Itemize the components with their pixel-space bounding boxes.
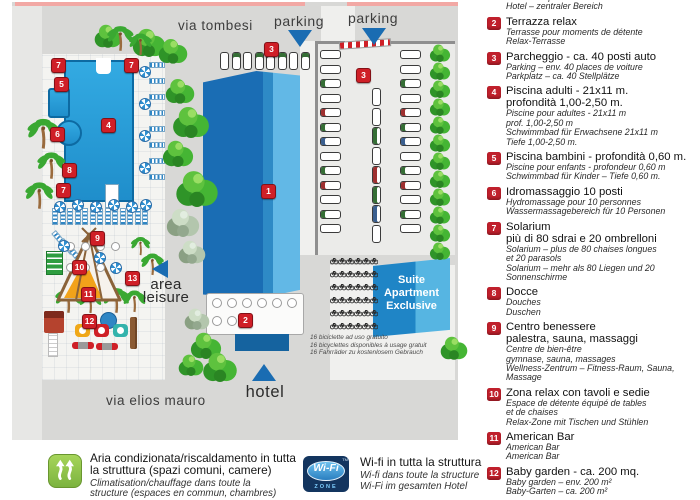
legend-number-badge: 6 bbox=[487, 187, 501, 200]
legend-translation: American Bar bbox=[506, 452, 574, 461]
legend-title: Parcheggio - ca. 40 posti auto bbox=[506, 51, 656, 63]
bush-icon bbox=[178, 354, 204, 376]
play-pad-icon bbox=[113, 324, 128, 337]
palm-icon bbox=[24, 178, 56, 210]
car-icon bbox=[289, 52, 298, 70]
legend-number-badge: 10 bbox=[487, 388, 501, 401]
bush-icon bbox=[175, 170, 219, 207]
wifi-zone-label: ZONE bbox=[303, 484, 349, 490]
pool-steps bbox=[96, 58, 111, 74]
bike-note-line: 16 Fahrräder zu kostenlosem Gebrauch bbox=[310, 349, 458, 357]
legend-title: Baby garden - ca. 200 mq. bbox=[506, 466, 639, 478]
umbrella-icon bbox=[72, 199, 84, 211]
umbrella-icon bbox=[139, 130, 151, 142]
sunbed-icon bbox=[120, 208, 126, 225]
car-icon bbox=[400, 108, 421, 117]
legend-number-badge: 4 bbox=[487, 86, 501, 99]
ac-note-translation: structure (espaces en commun, chambres) bbox=[90, 489, 305, 500]
car-icon bbox=[320, 166, 341, 175]
car-icon bbox=[400, 166, 421, 175]
umbrella-icon bbox=[90, 201, 102, 213]
car-icon bbox=[320, 152, 341, 161]
umbrella-icon bbox=[139, 66, 151, 78]
wifi-label: Wi-Fi bbox=[303, 462, 349, 474]
car-icon bbox=[232, 52, 241, 70]
wifi-note-translation: Wi-Fi im gesamten Hotel bbox=[360, 482, 500, 493]
sidewalk-strip bbox=[300, 41, 315, 255]
legend-translation: Tiefe 1,00-2,50 m. bbox=[506, 138, 658, 147]
car-icon bbox=[220, 52, 229, 70]
umbrella-icon bbox=[54, 201, 66, 213]
table-icon bbox=[242, 298, 252, 308]
lot-cars-middle bbox=[372, 88, 381, 243]
car-icon bbox=[320, 195, 341, 204]
map-marker: 3 bbox=[356, 68, 371, 83]
car-icon bbox=[400, 123, 421, 132]
legend-title: Centro benessere bbox=[506, 321, 675, 333]
legend-translation: Sonnenschirme bbox=[506, 273, 657, 282]
terrace-tables bbox=[212, 298, 300, 328]
legend-number-badge: 2 bbox=[487, 17, 501, 30]
wifi-tm-label: TM bbox=[342, 457, 348, 462]
ac-note: Aria condizionata/riscaldamento in tutta… bbox=[90, 452, 305, 500]
legend-title: Zona relax con tavoli e sedie bbox=[506, 387, 650, 399]
legend-item-8: 8 Docce Douches Duschen bbox=[487, 286, 699, 317]
bush-icon bbox=[428, 206, 452, 224]
car-icon bbox=[400, 152, 421, 161]
map-marker: 4 bbox=[101, 118, 116, 133]
bush-icon bbox=[428, 152, 452, 170]
map-marker: 1 bbox=[261, 184, 276, 199]
car-icon bbox=[320, 94, 341, 103]
legend-item-7: 7 Solarium più di 80 sdrai e 20 ombrello… bbox=[487, 221, 699, 283]
sunbed-icon bbox=[67, 208, 73, 225]
seesaw-icon bbox=[72, 342, 94, 349]
bush-icon bbox=[162, 140, 194, 167]
legend-title: Piscina adulti - 21x11 m. bbox=[506, 85, 658, 97]
wifi-zone-icon: Wi-Fi ZONE TM bbox=[303, 456, 349, 492]
car-icon bbox=[372, 108, 381, 126]
legend-item-11: 11 American Bar American Bar American Ba… bbox=[487, 431, 699, 462]
bush-icon bbox=[172, 106, 210, 138]
legend-translation: Relax-Zone mit Tischen und Stühlen bbox=[506, 418, 650, 427]
legend-translation: Parkplatz – ca. 40 Stellplätze bbox=[506, 72, 656, 81]
legend-translation: Baby-Garten – ca. 200 m² bbox=[506, 487, 639, 496]
suite-building: Suite Apartment Exclusive bbox=[373, 258, 450, 337]
street-label-via-tombesi: via tombesi bbox=[178, 18, 253, 33]
map-marker: 2 bbox=[238, 313, 253, 328]
table-icon bbox=[81, 242, 90, 251]
map-marker: 13 bbox=[125, 271, 140, 286]
car-icon bbox=[320, 50, 341, 59]
legend-title: Terrazza relax bbox=[506, 16, 643, 28]
parking-label-right: parking bbox=[348, 10, 398, 26]
hotel-arrow-icon bbox=[252, 364, 276, 381]
bush-icon bbox=[428, 62, 452, 80]
bush-icon bbox=[158, 38, 188, 64]
wifi-note-line: Wi-fi in tutta la struttura bbox=[360, 456, 500, 468]
table-icon bbox=[227, 298, 237, 308]
car-icon bbox=[320, 137, 341, 146]
car-icon bbox=[400, 181, 421, 190]
umbrella-icon bbox=[126, 201, 138, 213]
legend-item-2: 2 Terrazza relax Terrasse pour moments d… bbox=[487, 16, 699, 47]
car-icon bbox=[320, 123, 341, 132]
legend-item-12: 12 Baby garden - ca. 200 mq. Baby garden… bbox=[487, 466, 699, 497]
wifi-note: Wi-fi in tutta la struttura Wi-fi dans t… bbox=[360, 456, 500, 492]
boundary-line bbox=[15, 2, 305, 6]
umbrella-icon bbox=[110, 262, 122, 274]
legend-number-badge: 3 bbox=[487, 52, 501, 65]
table-icon bbox=[257, 298, 267, 308]
bike-note-line: 16 bicyclettes disponibles à usage gratu… bbox=[310, 342, 458, 350]
sunbed-icon bbox=[149, 110, 165, 116]
lot-border bbox=[315, 41, 318, 255]
legend-item-9: 9 Centro benessere palestra, sauna, mass… bbox=[487, 321, 699, 383]
seesaw-icon bbox=[96, 343, 118, 350]
table-icon bbox=[272, 298, 282, 308]
car-icon bbox=[320, 210, 341, 219]
bush-icon bbox=[178, 240, 206, 264]
legend-number-badge: 8 bbox=[487, 287, 501, 300]
map-marker: 7 bbox=[56, 183, 71, 198]
map-marker: 11 bbox=[81, 287, 96, 302]
car-icon bbox=[320, 224, 341, 233]
suite-label-line: Suite bbox=[373, 274, 450, 287]
car-icon bbox=[372, 147, 381, 165]
bike-note-line: 16 biciclette ad uso gratuito bbox=[310, 334, 458, 342]
palm-icon bbox=[128, 30, 154, 56]
ladder-icon bbox=[48, 333, 58, 357]
car-icon bbox=[400, 195, 421, 204]
playhouse-icon bbox=[44, 311, 64, 333]
bush-icon bbox=[165, 78, 195, 104]
map-marker: 6 bbox=[50, 127, 65, 142]
car-icon bbox=[320, 181, 341, 190]
resort-map-page: Suite Apartment Exclusive bbox=[0, 0, 700, 500]
bush-icon bbox=[428, 170, 452, 188]
sunbed-icon bbox=[82, 208, 88, 225]
legend-translation: Duschen bbox=[506, 308, 541, 317]
car-icon bbox=[372, 186, 381, 204]
umbrella-icon bbox=[58, 240, 70, 252]
suite-label-line: Exclusive bbox=[373, 300, 450, 313]
umbrella-icon bbox=[108, 199, 120, 211]
bush-icon bbox=[428, 134, 452, 152]
bench-icon bbox=[130, 317, 137, 349]
sunbed-icon bbox=[149, 126, 165, 132]
table-icon bbox=[287, 298, 297, 308]
umbrella-icon bbox=[139, 98, 151, 110]
map-marker: 10 bbox=[72, 260, 87, 275]
car-icon bbox=[372, 205, 381, 223]
car-icon bbox=[255, 52, 264, 70]
table-icon bbox=[227, 316, 237, 326]
legend-item-5: 5 Piscina bambini - profondità 0,60 m. P… bbox=[487, 151, 699, 182]
table-icon bbox=[212, 316, 222, 326]
legend-number-badge: 11 bbox=[487, 432, 501, 445]
bush-icon bbox=[202, 352, 238, 382]
car-icon bbox=[400, 94, 421, 103]
bush-icon bbox=[428, 98, 452, 116]
car-icon bbox=[400, 224, 421, 233]
bush-icon bbox=[428, 116, 452, 134]
parking-label-left: parking bbox=[274, 13, 324, 29]
map-marker: 8 bbox=[62, 163, 77, 178]
entrance-canopy bbox=[235, 334, 289, 351]
lot-cars-right bbox=[400, 50, 421, 233]
hedge bbox=[428, 44, 452, 260]
area-leisure-label-line: leisure bbox=[138, 291, 194, 304]
car-icon bbox=[400, 210, 421, 219]
map-marker: 7 bbox=[124, 58, 139, 73]
car-icon bbox=[400, 50, 421, 59]
table-icon bbox=[111, 242, 120, 251]
car-icon bbox=[372, 127, 381, 145]
legend-translation: Relax-Terrasse bbox=[506, 37, 643, 46]
umbrella-icon bbox=[140, 199, 152, 211]
car-icon bbox=[301, 52, 310, 70]
legend-item-10: 10 Zona relax con tavoli e sedie Espace … bbox=[487, 387, 699, 427]
legend-item-4: 4 Piscina adulti - 21x11 m. profondità 1… bbox=[487, 85, 699, 147]
legend: Hôtel – corps central Hotel – zentraler … bbox=[487, 0, 699, 500]
legend-number-badge: 9 bbox=[487, 322, 501, 335]
street-label-via-elios-mauro: via elios mauro bbox=[106, 393, 206, 408]
legend-translation: Wassermassagebereich für 10 Personen bbox=[506, 207, 665, 216]
car-icon bbox=[320, 65, 341, 74]
parking-arrow-icon bbox=[288, 30, 312, 47]
legend-translation: Hotel – zentraler Bereich bbox=[506, 2, 603, 11]
sunbed-icon bbox=[149, 78, 165, 84]
air-conditioning-icon bbox=[48, 454, 82, 488]
bush-icon bbox=[428, 224, 452, 242]
sunbed-icon bbox=[105, 208, 111, 225]
umbrella-icon bbox=[94, 252, 106, 264]
map-marker: 9 bbox=[90, 231, 105, 246]
bush-icon bbox=[184, 308, 210, 330]
car-icon bbox=[372, 166, 381, 184]
car-icon bbox=[243, 52, 252, 70]
bush-icon bbox=[428, 188, 452, 206]
bush-icon bbox=[428, 242, 452, 260]
bicycle-icon-grid bbox=[330, 254, 378, 332]
legend-title: Solarium bbox=[506, 221, 657, 233]
bush-icon bbox=[428, 80, 452, 98]
bush-icon bbox=[428, 44, 452, 62]
hotel-label: hotel bbox=[234, 383, 296, 402]
car-icon bbox=[400, 65, 421, 74]
parking-arrow-icon bbox=[362, 28, 386, 45]
car-icon bbox=[400, 79, 421, 88]
car-icon bbox=[372, 88, 381, 106]
car-icon bbox=[320, 79, 341, 88]
map-marker: 12 bbox=[82, 314, 97, 329]
sunbed-icon bbox=[149, 94, 165, 100]
legend-item-1: Hôtel – corps central Hotel – zentraler … bbox=[487, 0, 699, 12]
legend-translation: Massage bbox=[506, 373, 675, 382]
car-icon bbox=[320, 108, 341, 117]
map-marker: 3 bbox=[264, 42, 279, 57]
suite-label-line: Apartment bbox=[373, 287, 450, 300]
legend-number-badge: 5 bbox=[487, 152, 501, 165]
map-marker: 5 bbox=[54, 77, 69, 92]
legend-number-badge: 7 bbox=[487, 222, 501, 235]
table-icon bbox=[212, 298, 222, 308]
car-icon bbox=[400, 137, 421, 146]
ac-note-line: la struttura (spazi comuni, camere) bbox=[90, 464, 305, 476]
resort-map: Suite Apartment Exclusive bbox=[12, 2, 458, 440]
legend-item-6: 6 Idromassaggio 10 posti Hydromassage po… bbox=[487, 186, 699, 217]
table-icon bbox=[96, 263, 105, 272]
left-sidewalk bbox=[12, 6, 42, 440]
car-icon bbox=[372, 225, 381, 243]
sunbed-icon bbox=[149, 174, 165, 180]
lot-cars-left bbox=[320, 50, 341, 233]
map-marker: 7 bbox=[51, 58, 66, 73]
legend-item-3: 3 Parcheggio - ca. 40 posti auto Parking… bbox=[487, 51, 699, 82]
cabinet-icon bbox=[46, 251, 63, 275]
umbrella-icon bbox=[139, 162, 151, 174]
bush-icon bbox=[166, 208, 200, 237]
legend-title: più di 80 sdrai e 20 ombrelloni bbox=[506, 233, 657, 245]
boundary-line bbox=[347, 2, 458, 6]
legend-translation: Schwimmbad für Kinder – Tiefe 0,60 m. bbox=[506, 172, 686, 181]
